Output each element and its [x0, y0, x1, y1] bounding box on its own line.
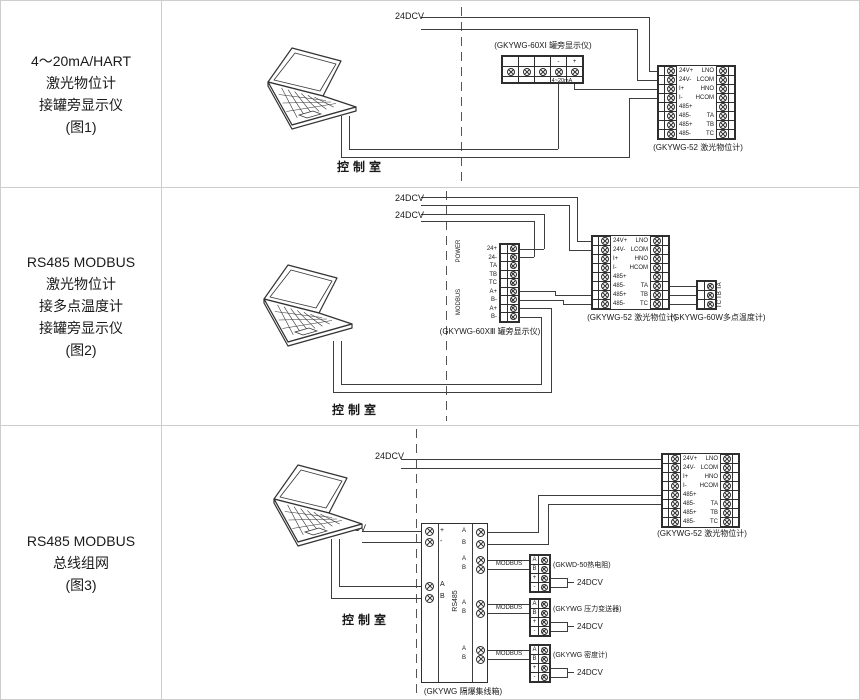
temp-meter-terminal-block [696, 280, 717, 310]
terminal-screw-icon [476, 600, 485, 609]
wire-segment [488, 613, 529, 614]
terminal-screw-icon [671, 509, 679, 517]
wire-segment [567, 622, 568, 632]
wire-segment [569, 250, 591, 251]
wiring-diagram-page: 4～20mA/HART激光物位计接罐旁显示仪(图1) RS485 MODBUS激… [0, 0, 860, 700]
wire-segment [558, 83, 559, 149]
terminal-screw-icon [671, 464, 679, 472]
display-terminal-block: -+4~20mA [501, 55, 584, 84]
terminal-screw-icon [653, 282, 661, 290]
sidebar-label-line: RS485 MODBUS [27, 251, 135, 273]
terminal-screw-icon [541, 674, 548, 681]
terminal-screw-icon [671, 473, 679, 481]
terminal-screw-icon [719, 67, 727, 75]
control-room-divider [446, 191, 447, 421]
mount-cell [728, 129, 735, 139]
display-caption: (GKYWG-60XⅢ 罐旁显示仪) [435, 326, 545, 337]
wire-segment [551, 308, 552, 393]
terminal-screw-icon [719, 76, 727, 84]
terminal-screw-icon [541, 601, 548, 608]
sidebar-label-line: 接罐旁显示仪 [39, 94, 123, 116]
terminal-label: A [462, 528, 466, 534]
wire-segment [550, 668, 567, 669]
terminal-screw-icon [671, 500, 679, 508]
wire-segment [548, 504, 661, 505]
wire-segment [349, 149, 558, 150]
terminal-label: TC [700, 517, 721, 527]
power-supply-label: 24DCV [395, 11, 424, 21]
terminal-column: 24V+24V-I+I-485+485-485+485- [610, 236, 631, 309]
wire-segment [567, 582, 574, 583]
terminal-column [538, 555, 550, 592]
terminal-screw-icon [541, 566, 548, 573]
wire-segment [534, 221, 535, 257]
terminal-screw-icon [667, 67, 675, 75]
terminal-screw-icon [723, 509, 731, 517]
terminal-screw-icon [476, 540, 485, 549]
terminal-label: - [440, 538, 442, 545]
terminal-screw-icon [667, 85, 675, 93]
junction-inner-divider [438, 524, 439, 682]
device-power-label: 24DCV [577, 578, 603, 587]
terminal-column [507, 244, 519, 322]
wire-segment [538, 495, 539, 533]
terminal-screw-icon [476, 655, 485, 664]
junction-box-caption: (GKYWG 隔爆集线箱) [408, 686, 518, 697]
wire-segment [550, 587, 567, 588]
density-meter-terminal-block: AB+- [529, 644, 551, 683]
rtd-caption: (GKWD-50热电阻) [553, 560, 611, 570]
terminal-screw-icon [723, 473, 731, 481]
sidebar-label-line: (图2) [65, 339, 96, 361]
terminal-screw-icon [541, 647, 548, 654]
terminal-screw-icon [510, 254, 517, 261]
terminal-screw-icon [601, 291, 609, 299]
sidebar-label-line: 激光物位计 [46, 72, 116, 94]
screw-cell [704, 299, 716, 309]
screw-cell [538, 582, 550, 592]
laser-meter-terminal-block: 24V+24V-I+I-485+485-485+485-LNOLCOMHNOHC… [661, 453, 740, 528]
terminal-screw-icon [510, 296, 517, 303]
mount-cell [518, 76, 535, 83]
terminal-label: 24+ [463, 245, 497, 254]
terminal-screw-icon [671, 518, 679, 526]
terminal-label: B [462, 565, 466, 571]
wire-segment [362, 531, 421, 532]
terminal-screw-icon [539, 68, 547, 76]
wire-segment [362, 542, 421, 543]
wire-segment [670, 304, 696, 305]
wire-segment [544, 214, 545, 249]
terminal-screw-icon [425, 582, 434, 591]
terminal-screw-icon [601, 237, 609, 245]
terminal-label: B [462, 540, 466, 546]
pressure-transmitter-caption: (GKYWG 压力变送器) [553, 604, 621, 614]
power-supply-label: 24DCV [375, 451, 404, 461]
terminal-screw-icon [541, 656, 548, 663]
terminal-column [538, 645, 550, 682]
laser-meter-caption: (GKYWG-52 激光物位计) [647, 528, 757, 539]
terminal-screw-icon [723, 482, 731, 490]
wire-segment [563, 304, 591, 305]
terminal-screw-icon [507, 68, 515, 76]
wire-segment [550, 622, 567, 623]
wire-segment [538, 495, 661, 496]
wire-segment [421, 29, 637, 30]
control-room-label: 控制室 [319, 158, 403, 175]
wire-segment [670, 295, 696, 296]
terminal-screw-icon [667, 121, 675, 129]
wire-segment [550, 578, 567, 579]
control-room-label: 控制室 [324, 611, 408, 628]
wire-segment [519, 291, 555, 292]
modbus-wire-label: MODBUS [489, 561, 529, 567]
terminal-label: 485- [610, 299, 631, 309]
terminal-column [662, 236, 669, 309]
terminal-screw-icon [667, 76, 675, 84]
laser-meter-terminal-block: 24V+24V-I+I-485+485-485+485-LNOLCOMHNOHC… [591, 235, 670, 310]
laptop-icon [259, 263, 359, 356]
terminal-screw-icon [425, 538, 434, 547]
terminal-column: 24V+24V-I+I-485+485-485+485- [676, 66, 697, 139]
terminal-label: B [462, 655, 466, 661]
device-power-label: 24DCV [577, 668, 603, 677]
laser-meter-terminal-block: 24V+24V-I+I-485+485-485+485-LNOLCOMHNOHC… [657, 65, 736, 140]
table-divider-vertical [161, 1, 162, 700]
wire-segment [488, 569, 529, 570]
terminal-column [518, 56, 535, 83]
terminal-screw-icon [719, 85, 727, 93]
terminal-screw-icon [653, 273, 661, 281]
terminal-label: A [440, 581, 445, 588]
terminal-screw-icon [653, 255, 661, 263]
wire-segment [569, 205, 570, 250]
sidebar-label-line: (图3) [65, 574, 96, 596]
terminal-label: 485- [676, 129, 697, 139]
wire-segment [567, 672, 574, 673]
terminal-screw-icon [541, 665, 548, 672]
wire-segment [421, 197, 577, 198]
terminal-column [732, 454, 739, 527]
wire-segment [548, 504, 549, 545]
laser-meter-caption: (GKYWG-52 激光物位计) [643, 142, 753, 153]
sidebar-label-line: 激光物位计 [46, 273, 116, 295]
terminal-screw-icon [707, 283, 714, 290]
terminal-screw-icon [671, 482, 679, 490]
terminal-screw-icon [541, 584, 548, 591]
wire-segment [421, 221, 534, 222]
wire-segment [519, 249, 544, 250]
terminal-screw-icon [723, 455, 731, 463]
power-supply-label: 24DCV [395, 193, 424, 203]
junction-box: +-ABABABABABRS485 [421, 523, 488, 683]
wire-segment [629, 98, 657, 99]
terminal-screw-icon [523, 68, 531, 76]
temp-meter-caption: (GKYWG-60W多点温度计) [663, 312, 773, 323]
wire-segment [401, 468, 661, 469]
terminal-screw-icon [476, 556, 485, 565]
junction-inner-divider [472, 524, 473, 682]
terminal-label: A [462, 556, 466, 562]
pressure-transmitter-terminal-block: AB+- [529, 598, 551, 637]
wire-segment [577, 197, 578, 241]
row-label-fig3: RS485 MODBUS总线组网(图3) [1, 425, 161, 700]
wire-segment [331, 598, 421, 599]
power-group-label: POWER [456, 231, 462, 271]
terminal-screw-icon [476, 609, 485, 618]
terminal-screw-icon [425, 594, 434, 603]
terminal-screw-icon [653, 300, 661, 308]
sidebar-label-line: 总线组网 [53, 552, 109, 574]
signal-range-label: 4~20mA [540, 78, 584, 84]
screw-cell [538, 626, 550, 636]
wire-segment [341, 384, 541, 385]
terminal-screw-icon [601, 246, 609, 254]
display-terminal-block [499, 243, 520, 323]
wire-segment [577, 241, 591, 242]
terminal-column: 24V+24V-I+I-485+485-485+485- [680, 454, 701, 527]
terminal-screw-icon [719, 94, 727, 102]
wire-segment [550, 677, 567, 678]
wire-segment [574, 89, 657, 90]
terminal-screw-icon [601, 255, 609, 263]
terminal-column: LNOLCOMHNOHCOMTATBTC [630, 236, 651, 309]
terminal-screw-icon [719, 112, 727, 120]
terminal-column [728, 66, 735, 139]
terminal-screw-icon [510, 245, 517, 252]
terminal-screw-icon [667, 103, 675, 111]
terminal-label: A [462, 646, 466, 652]
terminal-screw-icon [653, 237, 661, 245]
terminal-screw-icon [653, 246, 661, 254]
wire-segment [333, 392, 551, 393]
terminal-column [704, 281, 716, 309]
terminal-screw-icon [719, 130, 727, 138]
terminal-screw-icon [510, 313, 517, 320]
control-room-divider [416, 429, 417, 697]
modbus-wire-label: MODBUS [489, 605, 529, 611]
density-meter-caption: (GKYWG 密度计) [553, 650, 607, 660]
terminal-screw-icon [653, 291, 661, 299]
terminal-label: B [440, 593, 445, 600]
terminal-screw-icon [671, 491, 679, 499]
terminal-screw-icon [541, 610, 548, 617]
terminal-screw-icon [571, 68, 579, 76]
row-label-fig2: RS485 MODBUS激光物位计接多点温度计接罐旁显示仪(图2) [1, 187, 161, 425]
wire-segment [567, 668, 568, 678]
power-supply-label: 24DCV [395, 210, 424, 220]
terminal-screw-icon [723, 518, 731, 526]
wire-segment [421, 17, 649, 18]
wire-segment [421, 214, 544, 215]
screw-cell [507, 312, 519, 322]
terminal-screw-icon [653, 264, 661, 272]
terminal-screw-icon [541, 557, 548, 564]
rtd-terminal-block: AB+- [529, 554, 551, 593]
terminal-label: TC [696, 129, 717, 139]
terminal-screw-icon [707, 301, 714, 308]
terminal-screw-icon [510, 262, 517, 269]
terminal-column: LNOLCOMHNOHCOMTATBTC [696, 66, 717, 139]
wire-segment [519, 317, 541, 318]
terminal-screw-icon [425, 527, 434, 536]
wire-segment [519, 257, 534, 258]
terminal-column [538, 599, 550, 636]
wire-segment [488, 544, 548, 545]
terminal-label: TC [463, 279, 497, 288]
wire-segment [555, 295, 591, 296]
bus-type-label: RS485 [451, 581, 461, 621]
terminal-label: + [440, 527, 444, 534]
terminal-screw-icon [601, 273, 609, 281]
terminal-screw-icon [476, 646, 485, 655]
wire-segment [567, 626, 574, 627]
terminal-screw-icon [510, 279, 517, 286]
sidebar-label-line: (图1) [65, 116, 96, 138]
modbus-wire-label: MODBUS [489, 651, 529, 657]
wire-segment [488, 532, 538, 533]
wire-segment [519, 300, 563, 301]
terminal-screw-icon [510, 288, 517, 295]
terminal-screw-icon [555, 68, 563, 76]
terminal-screw-icon [671, 455, 679, 463]
terminal-label: TA [463, 262, 497, 271]
terminal-screw-icon [719, 103, 727, 111]
mount-cell [502, 76, 519, 83]
terminal-label: B- [463, 313, 497, 322]
modbus-group-label: MODBUS [456, 282, 462, 322]
terminal-label: A [462, 600, 466, 606]
wire-segment [649, 17, 650, 72]
sidebar-label-line: RS485 MODBUS [27, 530, 135, 552]
laptop-icon [269, 463, 369, 556]
row-label-fig1: 4～20mA/HART激光物位计接罐旁显示仪(图1) [1, 1, 161, 187]
terminal-label: TC [630, 299, 651, 309]
terminal-label: 485- [680, 517, 701, 527]
wire-segment [637, 80, 658, 81]
wire-segment [670, 286, 696, 287]
terminal-screw-icon [601, 300, 609, 308]
terminal-screw-icon [541, 575, 548, 582]
wire-segment [519, 308, 551, 309]
terminal-label: B [462, 609, 466, 615]
sidebar-label-line: 接多点温度计 [39, 295, 123, 317]
laptop-icon [263, 46, 363, 139]
wire-segment [401, 459, 661, 460]
terminal-label: TC [716, 296, 724, 312]
terminal-screw-icon [667, 112, 675, 120]
terminal-screw-icon [667, 130, 675, 138]
wire-segment [339, 586, 421, 587]
terminal-label: A+ [463, 305, 497, 314]
terminal-screw-icon [476, 565, 485, 574]
terminal-screw-icon [601, 264, 609, 272]
terminal-screw-icon [667, 94, 675, 102]
terminal-screw-icon [719, 121, 727, 129]
control-room-label: 控制室 [314, 401, 398, 418]
terminal-screw-icon [541, 619, 548, 626]
sidebar-label-line: 接罐旁显示仪 [39, 317, 123, 339]
sidebar-label-line: 4～20mA/HART [31, 50, 131, 72]
mount-cell [662, 299, 669, 309]
terminal-screw-icon [510, 305, 517, 312]
terminal-screw-icon [601, 282, 609, 290]
terminal-label: 24- [463, 254, 497, 263]
display-caption: (GKYWG-60XⅠ 罐旁显示仪) [488, 40, 598, 51]
terminal-column: LNOLCOMHNOHCOMTATBTC [700, 454, 721, 527]
screw-cell [538, 672, 550, 682]
terminal-screw-icon [510, 271, 517, 278]
terminal-screw-icon [723, 491, 731, 499]
mount-cell [732, 517, 739, 527]
terminal-screw-icon [541, 628, 548, 635]
wire-segment [488, 659, 529, 660]
terminal-label: A+ [463, 288, 497, 297]
terminal-screw-icon [476, 528, 485, 537]
terminal-column [502, 56, 519, 83]
terminal-label: TB [463, 271, 497, 280]
terminal-screw-icon [723, 500, 731, 508]
wire-segment [637, 29, 638, 81]
wire-segment [567, 578, 568, 588]
wire-segment [629, 98, 630, 158]
terminal-label: B- [463, 296, 497, 305]
device-power-label: 24DCV [577, 622, 603, 631]
terminal-screw-icon [723, 464, 731, 472]
terminal-screw-icon [707, 292, 714, 299]
wire-segment [421, 205, 569, 206]
wire-segment [550, 631, 567, 632]
